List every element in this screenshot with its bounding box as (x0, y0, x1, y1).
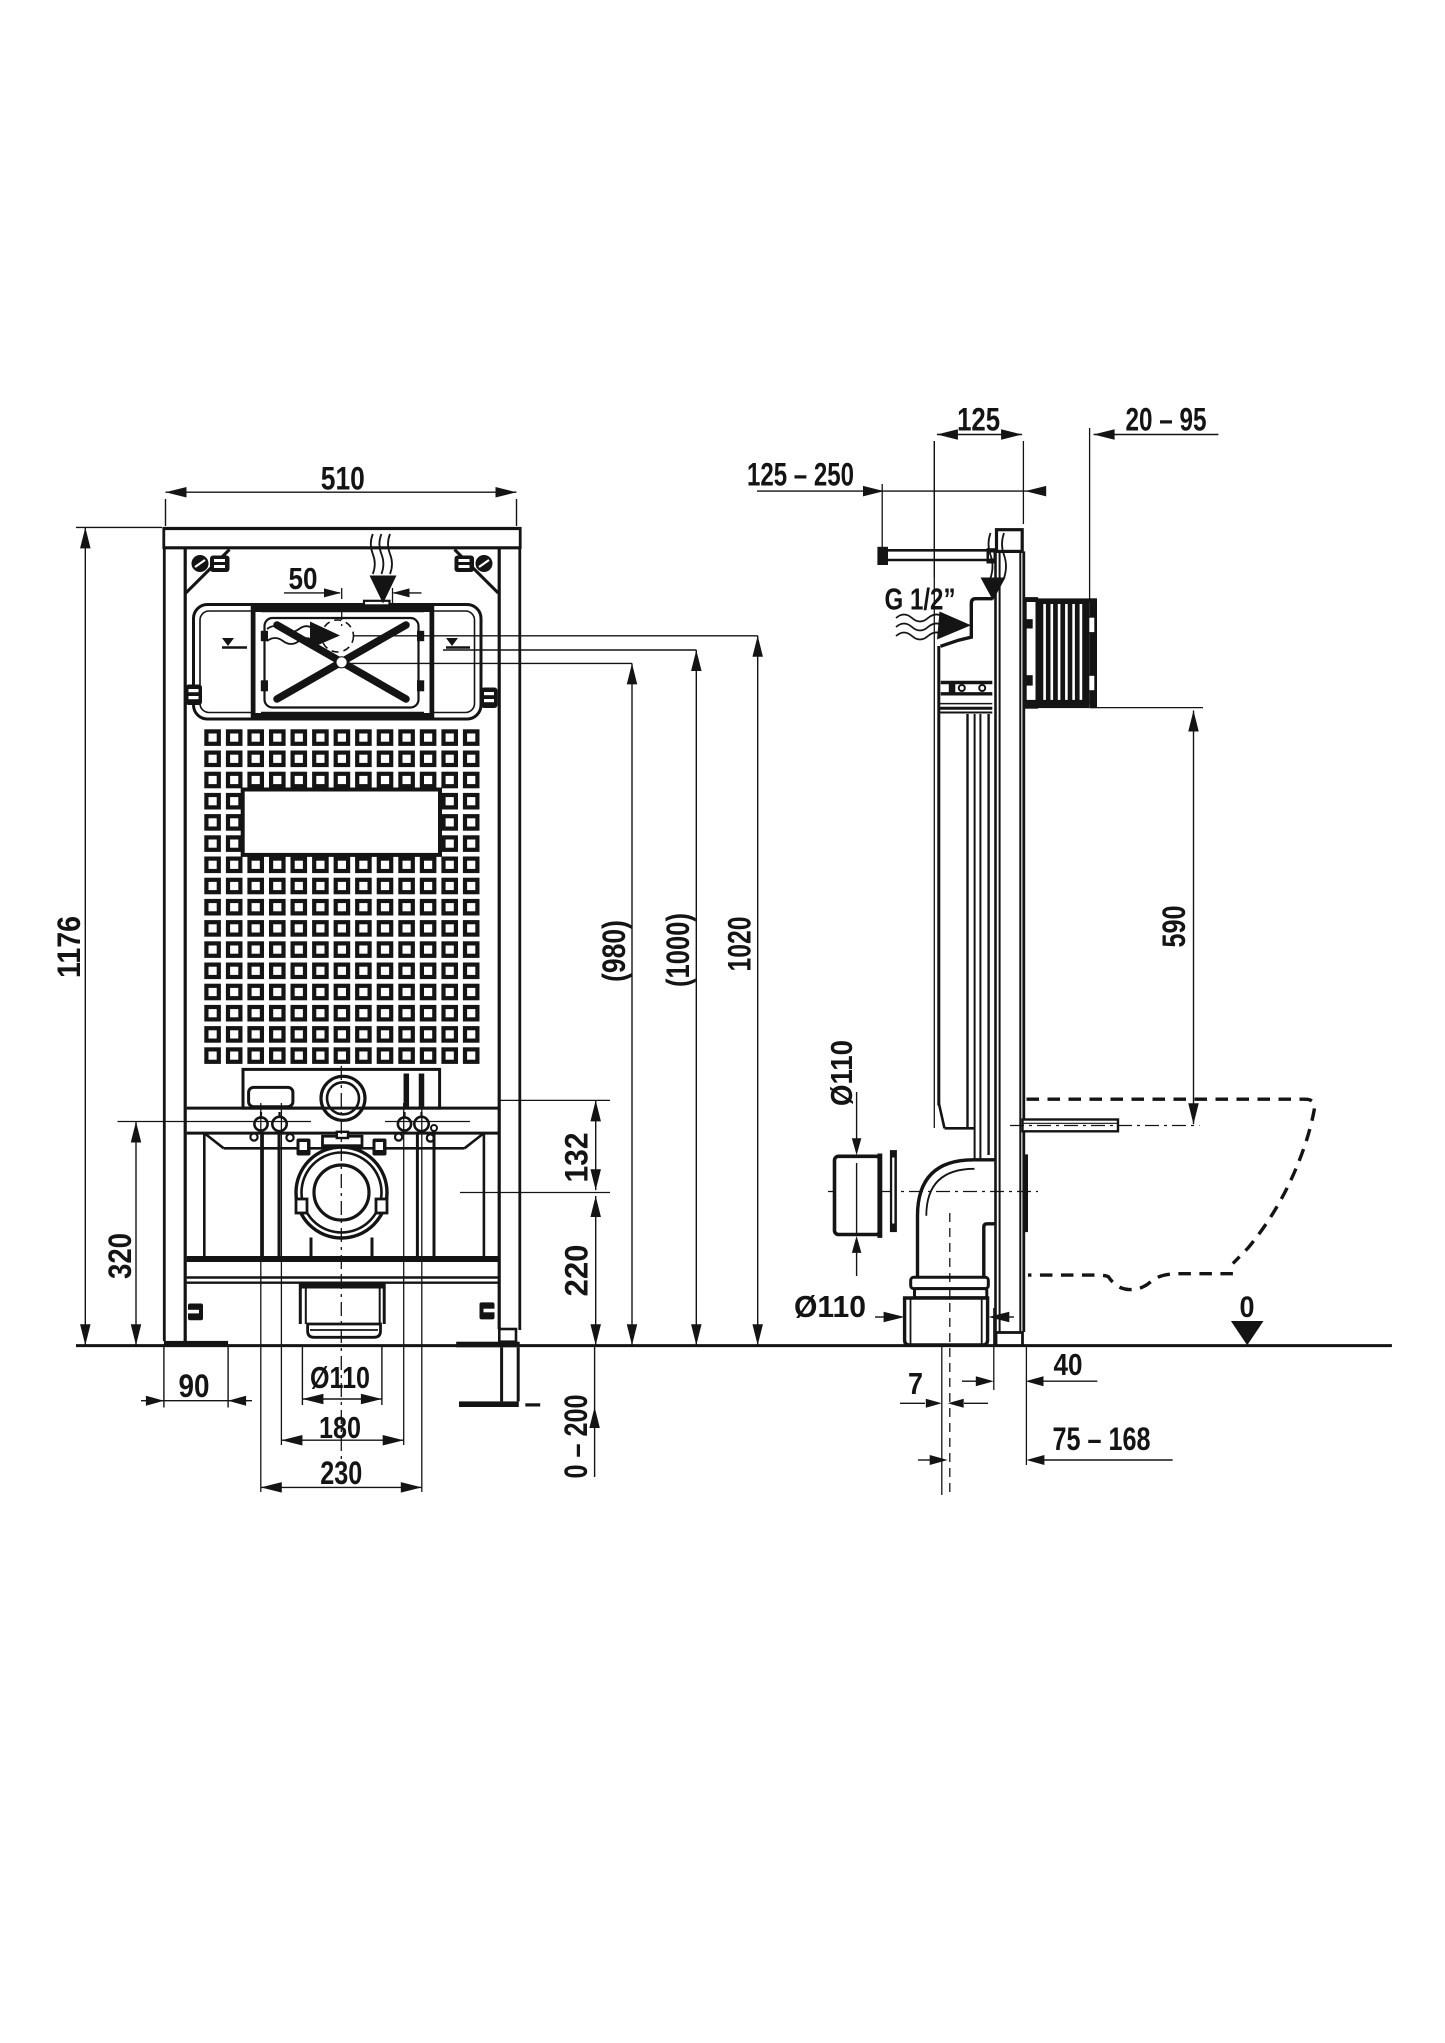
svg-text:(1000): (1000) (660, 913, 696, 987)
svg-text:90: 90 (179, 1368, 210, 1404)
svg-text:Ø110: Ø110 (310, 1360, 370, 1395)
svg-text:Ø110: Ø110 (824, 1040, 859, 1106)
svg-text:40: 40 (1054, 1347, 1083, 1382)
svg-text:590: 590 (1156, 906, 1192, 948)
svg-text:0: 0 (1240, 1291, 1255, 1324)
svg-text:(980): (980) (596, 920, 632, 982)
svg-text:125: 125 (957, 402, 1000, 438)
svg-text:220: 220 (559, 1245, 595, 1297)
svg-text:75 – 168: 75 – 168 (1053, 1421, 1151, 1457)
svg-text:320: 320 (102, 1233, 138, 1279)
svg-text:125 – 250: 125 – 250 (747, 457, 854, 493)
svg-text:230: 230 (320, 1455, 362, 1491)
svg-text:0 – 200: 0 – 200 (558, 1395, 594, 1479)
svg-text:50: 50 (289, 561, 318, 596)
svg-text:20 – 95: 20 – 95 (1126, 402, 1207, 438)
svg-text:1176: 1176 (51, 916, 87, 978)
svg-text:G 1/2”: G 1/2” (885, 582, 956, 617)
svg-text:1020: 1020 (722, 917, 758, 972)
svg-text:Ø110: Ø110 (794, 1289, 866, 1324)
svg-text:132: 132 (559, 1133, 595, 1183)
svg-text:7: 7 (908, 1366, 923, 1401)
svg-text:510: 510 (321, 461, 365, 497)
